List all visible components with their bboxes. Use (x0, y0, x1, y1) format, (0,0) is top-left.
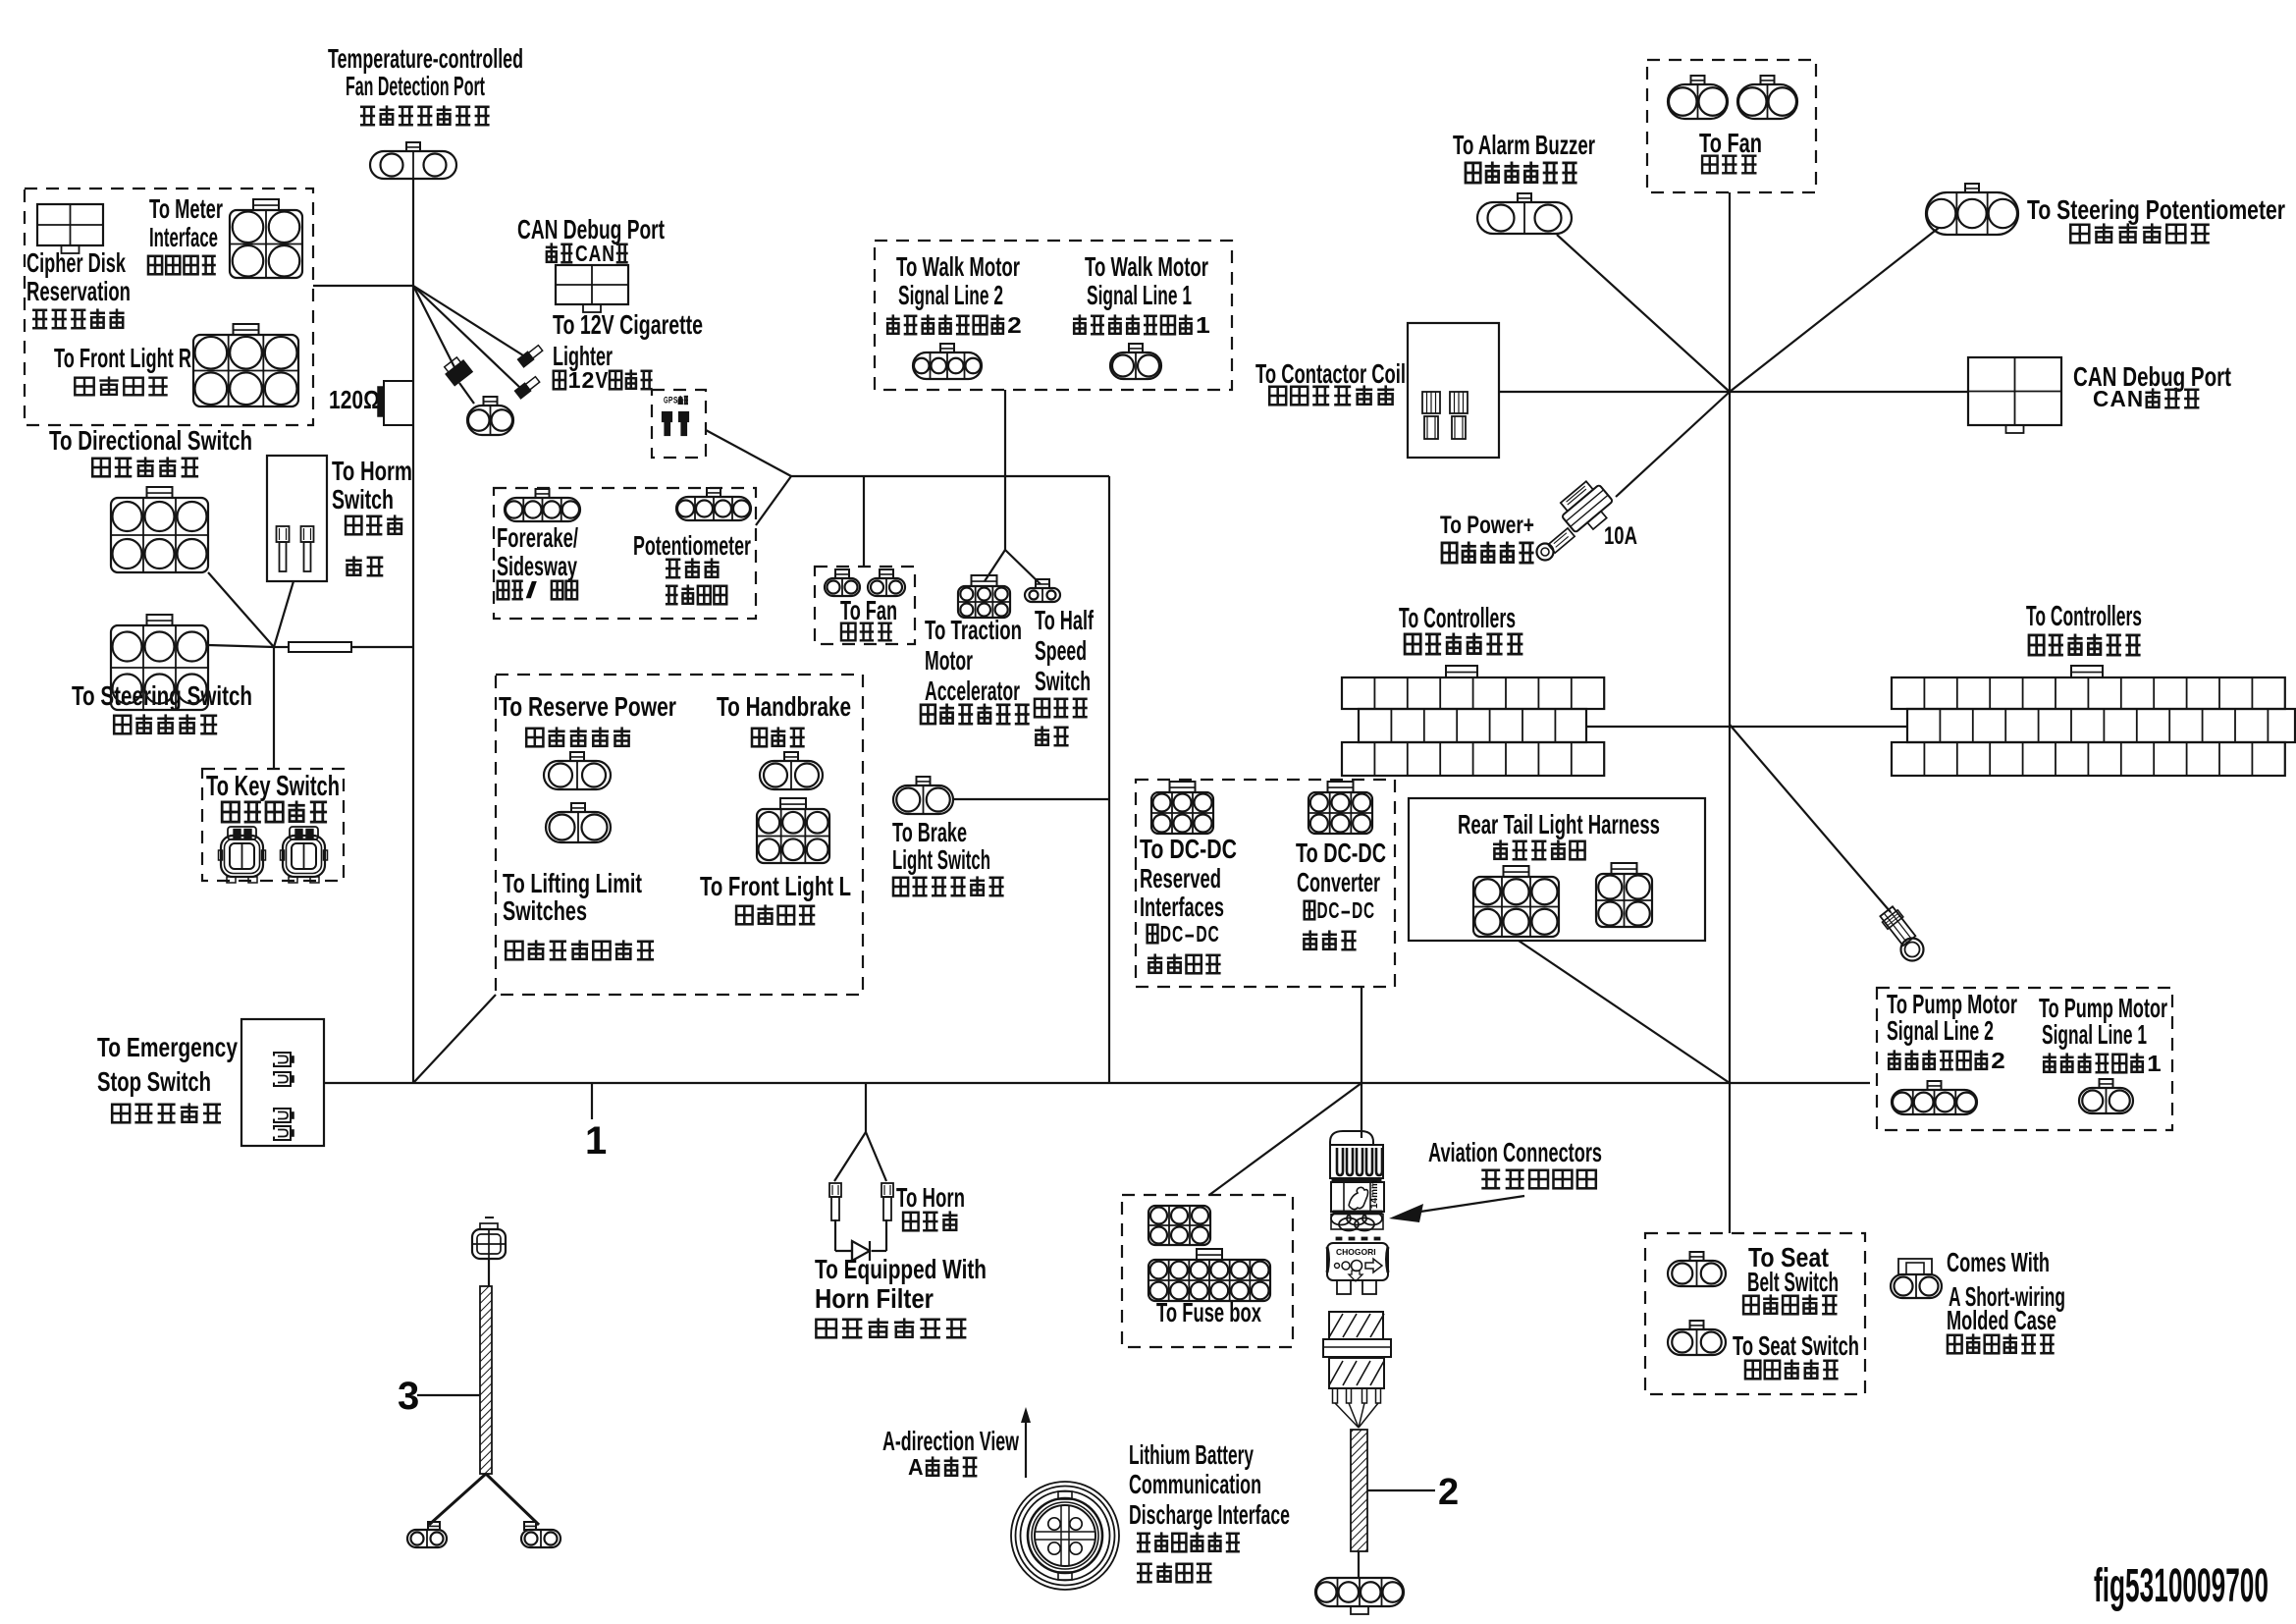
svg-text:To Brake: To Brake (892, 817, 967, 847)
svg-text:To Equipped With: To Equipped With (815, 1254, 987, 1284)
svg-text:To 12V Cigarette: To 12V Cigarette (553, 309, 703, 340)
svg-text:Motor: Motor (925, 645, 973, 676)
svg-text:3: 3 (398, 1375, 419, 1418)
svg-text:Belt Switch: Belt Switch (1747, 1267, 1839, 1297)
svg-text:A: A (2110, 386, 2127, 411)
svg-text:C: C (1172, 921, 1184, 947)
svg-text:Forerake/: Forerake/ (497, 522, 578, 553)
svg-text:A-direction View: A-direction View (882, 1426, 1019, 1456)
svg-text:To Front Light R: To Front Light R (54, 343, 191, 373)
svg-text:1: 1 (568, 367, 581, 393)
svg-text:1: 1 (585, 1119, 607, 1163)
svg-text:Cipher Disk: Cipher Disk (27, 247, 126, 278)
svg-text:Rear Tail Light Harness: Rear Tail Light Harness (1458, 809, 1660, 839)
svg-text:To Meter: To Meter (149, 193, 223, 224)
svg-text:Accelerator: Accelerator (925, 676, 1020, 706)
svg-text:To Directional Switch: To Directional Switch (49, 425, 252, 456)
svg-text:To Emergency: To Emergency (97, 1032, 238, 1062)
svg-text:fig5310009700: fig5310009700 (2094, 1560, 2269, 1612)
svg-text:To Traction: To Traction (925, 615, 1022, 645)
svg-text:-: - (1184, 921, 1195, 947)
svg-text:N: N (2127, 386, 2143, 411)
svg-text:Temperature-controlled: Temperature-controlled (328, 43, 523, 74)
svg-text:To Fuse box: To Fuse box (1156, 1297, 1261, 1327)
svg-text:To Steering Potentiometer: To Steering Potentiometer (2027, 194, 2285, 225)
svg-text:/: / (525, 577, 538, 603)
svg-text:V: V (595, 367, 608, 393)
svg-text:S: S (673, 396, 678, 406)
svg-text:Fan Detection Port: Fan Detection Port (346, 71, 485, 101)
svg-text:To DC-DC: To DC-DC (1140, 834, 1237, 864)
svg-text:Interfaces: Interfaces (1140, 892, 1224, 922)
svg-text:2: 2 (1438, 1472, 1459, 1513)
svg-text:Switch: Switch (332, 484, 394, 514)
svg-text:Reservation: Reservation (27, 276, 131, 306)
svg-text:14mm: 14mm (1369, 1180, 1380, 1209)
svg-text:Speed: Speed (1035, 635, 1087, 666)
svg-text:Converter: Converter (1297, 867, 1380, 897)
svg-text:2: 2 (1991, 1048, 2005, 1073)
svg-text:To Fan: To Fan (840, 595, 897, 625)
svg-text:Signal Line 2: Signal Line 2 (898, 280, 1003, 310)
svg-text:C: C (1328, 897, 1339, 923)
svg-text:1: 1 (1196, 312, 1210, 338)
svg-text:A: A (589, 241, 602, 266)
svg-text:Communication: Communication (1129, 1469, 1261, 1499)
svg-text:Horn Filter: Horn Filter (815, 1283, 934, 1314)
svg-text:Interface: Interface (149, 222, 218, 252)
svg-text:D: D (1196, 921, 1206, 947)
svg-text:Signal Line 1: Signal Line 1 (2042, 1019, 2147, 1050)
svg-text:Lithium Battery: Lithium Battery (1129, 1439, 1254, 1470)
svg-text:Aviation Connectors: Aviation Connectors (1428, 1137, 1602, 1167)
svg-text:Signal Line 1: Signal Line 1 (1087, 280, 1192, 310)
svg-text:2: 2 (1007, 312, 1022, 338)
svg-text:CHOGORI: CHOGORI (1336, 1247, 1376, 1257)
svg-text:Signal Line 2: Signal Line 2 (1887, 1015, 1994, 1046)
svg-text:Potentiometer: Potentiometer (633, 530, 751, 561)
svg-text:To Fan: To Fan (1699, 128, 1762, 158)
svg-text:C: C (1208, 921, 1220, 947)
svg-text:To Half: To Half (1035, 605, 1094, 635)
svg-text:To Controllers: To Controllers (2026, 601, 2142, 632)
svg-text:To Alarm Buzzer: To Alarm Buzzer (1453, 130, 1595, 160)
svg-text:To Handbrake: To Handbrake (717, 691, 851, 722)
svg-text:2: 2 (582, 367, 595, 393)
svg-text:To Front Light L: To Front Light L (700, 871, 851, 901)
svg-text:To Walk Motor: To Walk Motor (1085, 251, 1208, 282)
svg-text:To Power+: To Power+ (1440, 512, 1534, 539)
svg-text:D: D (1317, 897, 1328, 923)
svg-text:Comes With: Comes With (1947, 1247, 2050, 1277)
svg-text:To Horn: To Horn (896, 1182, 965, 1213)
svg-text:To Key Switch: To Key Switch (206, 771, 340, 802)
svg-text:To Walk Motor: To Walk Motor (896, 251, 1020, 282)
svg-text:C: C (2093, 386, 2109, 411)
svg-text:-: - (1340, 897, 1351, 923)
svg-text:D: D (1352, 897, 1362, 923)
svg-text:To Controllers: To Controllers (1399, 603, 1516, 634)
svg-text:To Seat Switch: To Seat Switch (1733, 1330, 1859, 1361)
svg-text:Switches: Switches (503, 895, 587, 926)
svg-text:Molded Case: Molded Case (1947, 1305, 2056, 1335)
svg-text:To Contactor Coil: To Contactor Coil (1255, 358, 1406, 389)
svg-text:Switch: Switch (1035, 666, 1091, 696)
svg-text:To DC-DC: To DC-DC (1296, 838, 1386, 868)
svg-text:Discharge Interface: Discharge Interface (1129, 1499, 1290, 1530)
svg-text:A: A (908, 1454, 924, 1480)
svg-text:1: 1 (2147, 1051, 2162, 1076)
svg-text:120Ω: 120Ω (329, 385, 380, 414)
svg-text:To Reserve Power: To Reserve Power (499, 691, 676, 722)
svg-text:Reserved: Reserved (1140, 863, 1221, 893)
svg-text:C: C (1363, 897, 1374, 923)
svg-text:To Horm: To Horm (332, 456, 412, 486)
svg-text:Stop Switch: Stop Switch (97, 1066, 211, 1097)
svg-text:10A: 10A (1604, 522, 1637, 550)
svg-text:N: N (602, 241, 614, 266)
svg-text:Light Switch: Light Switch (892, 844, 990, 875)
svg-text:To Steering Switch: To Steering Switch (72, 680, 252, 711)
svg-text:D: D (1160, 921, 1171, 947)
svg-text:C: C (575, 241, 588, 266)
svg-text:To Lifting Limit: To Lifting Limit (503, 868, 642, 898)
